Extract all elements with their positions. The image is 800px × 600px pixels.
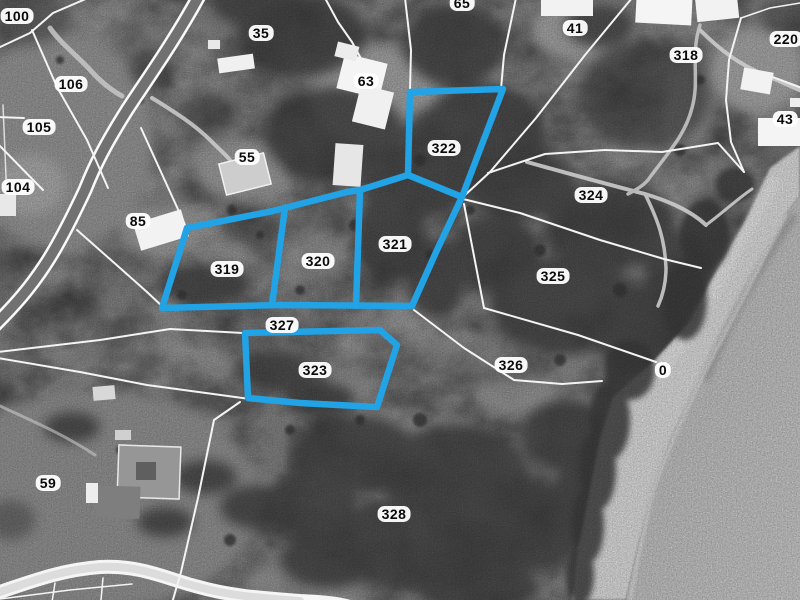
building <box>635 0 693 25</box>
aerial-map-canvas[interactable] <box>0 0 800 600</box>
building <box>333 143 364 187</box>
building <box>541 0 593 16</box>
building <box>92 385 115 401</box>
aerial-parcel-map: 100 35 65 41 318 220 106 63 105 43 55 10… <box>0 0 800 600</box>
building <box>86 483 98 503</box>
selected-parcel-divider-320-321[interactable] <box>356 190 360 306</box>
building <box>136 462 156 480</box>
building <box>115 430 131 440</box>
building <box>0 194 16 216</box>
building <box>208 40 220 49</box>
building <box>790 98 800 107</box>
building <box>95 485 140 519</box>
building <box>758 118 800 146</box>
